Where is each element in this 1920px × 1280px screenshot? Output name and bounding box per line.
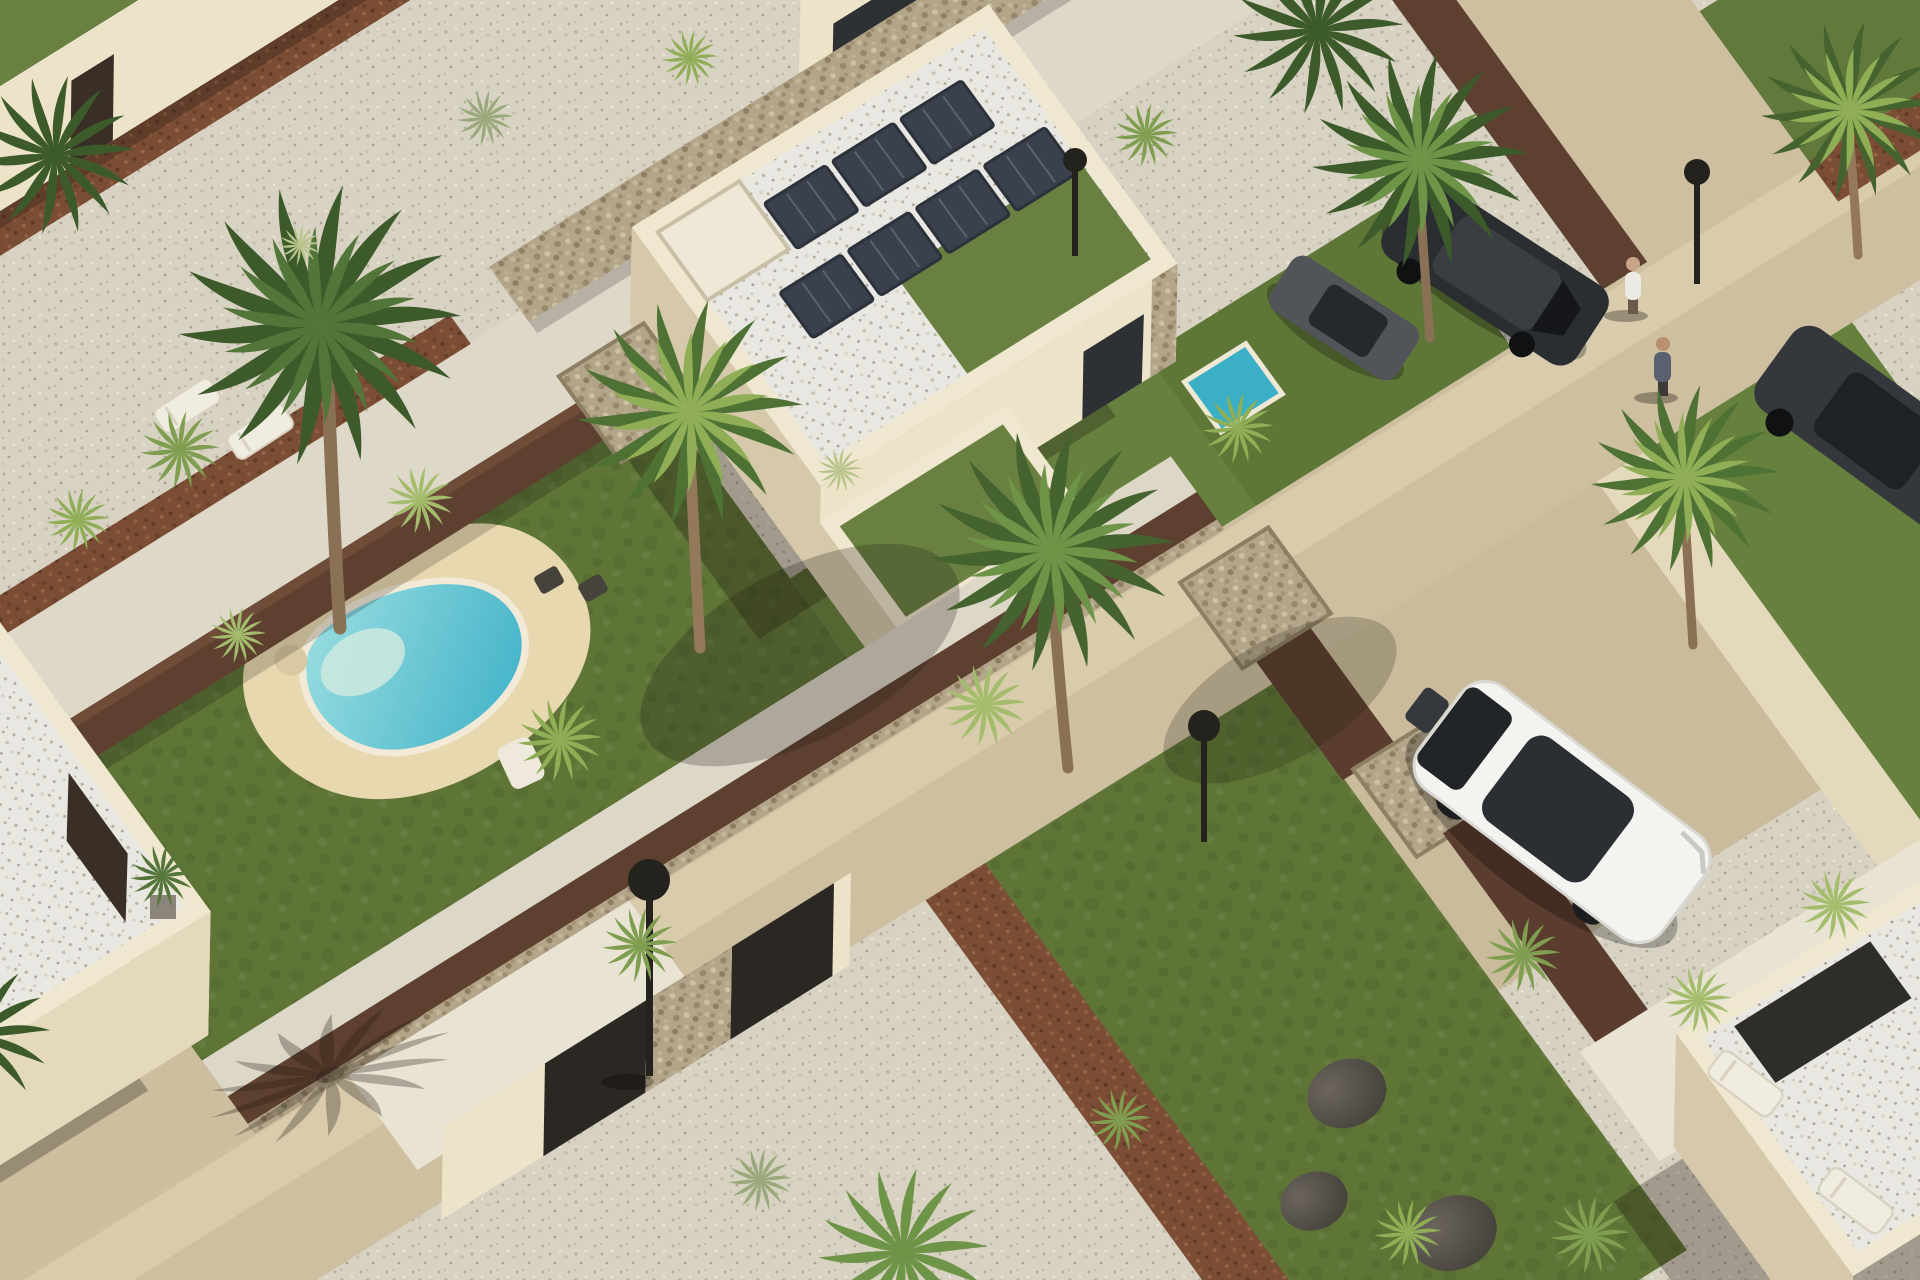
lamp3-head [1684, 159, 1710, 185]
lamp1-pole [646, 884, 653, 1076]
person1-shadow [1604, 310, 1648, 322]
person2-head [1656, 337, 1670, 351]
lamp3-pole [1694, 176, 1700, 284]
person1-head [1626, 257, 1640, 271]
lamp1-head [628, 859, 670, 901]
pot [150, 895, 176, 919]
person2-torso [1654, 352, 1671, 382]
person2-shadow [1634, 392, 1678, 404]
aerial-render-svg [0, 0, 1920, 1280]
lamp2-pole [1201, 730, 1207, 842]
lamp1-shadow [602, 1074, 654, 1090]
person1-torso [1625, 272, 1641, 300]
lamp2-head [1188, 710, 1220, 742]
render-canvas [0, 0, 1920, 1280]
lamp4-pole [1072, 164, 1078, 256]
lamp4-head [1063, 148, 1087, 172]
